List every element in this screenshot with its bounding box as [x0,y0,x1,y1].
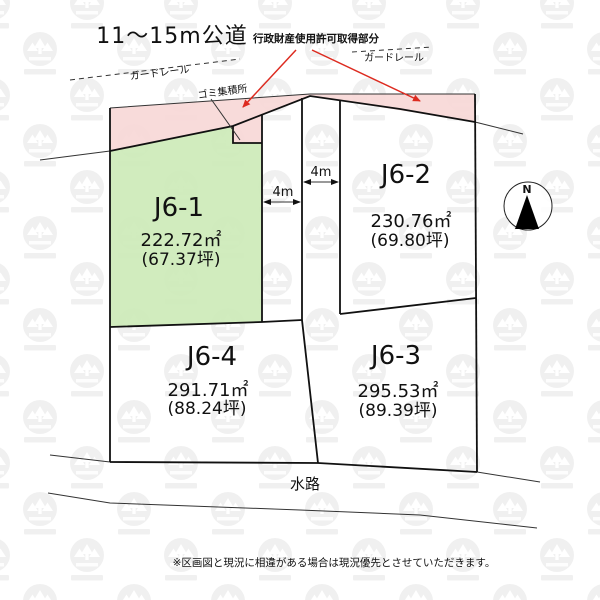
lot-plan-figure: N 11〜15m公道 行政財産使用許可取得部分 ガードレール ガードレール ゴミ… [0,0,600,600]
plot-id: J6-2 [379,160,431,190]
plot-label-j6-3: J6-3 295.53㎡ (89.39坪) [358,341,439,421]
plot-area-tsubo: (67.37坪) [142,250,221,270]
guardrail-label-right: ガードレール [364,52,424,64]
waterway-label: 水路 [290,475,320,493]
j6-2-south-edge [340,298,476,314]
plot-id: J6-3 [369,341,421,371]
plot-area-tsubo: (69.80坪) [371,231,450,251]
east-boundary [475,94,477,472]
waterway-top-extension-left [50,455,110,462]
dimension-label-right: 4m [311,165,332,180]
plot-j6-1-area [110,126,262,327]
plot-label-j6-2: J6-2 230.76㎡ (69.80坪) [371,160,452,251]
plot-area-tsubo: (88.24坪) [168,399,247,419]
boundary-extension-right [475,122,523,134]
north-compass: N [504,182,552,230]
compass-north-label: N [522,183,531,196]
waterway-top-extension-right [477,472,540,482]
footer-note: ※区画図と現況に相違がある場合は現況優先とさせていただきます。 [173,556,496,569]
plot-area-sqm: 222.72㎡ [141,229,222,251]
south-boundary [110,462,477,472]
waterway-bottom-line [48,493,537,528]
road-title: 11〜15m公道 [96,24,247,49]
plot-area-sqm: 295.53㎡ [358,380,439,402]
plot-area-tsubo: (89.39坪) [359,401,438,421]
guardrail-label-left: ガードレール [129,63,190,82]
road-permission-note: 行政財産使用許可取得部分 [252,32,379,45]
plot-id: J6-4 [185,342,237,372]
j6-3-j6-4-divider [302,320,318,463]
plot-label-j6-4: J6-4 291.71㎡ (88.24坪) [168,342,249,419]
lot-plan-drawing: N 11〜15m公道 行政財産使用許可取得部分 ガードレール ガードレール ゴミ… [0,0,600,600]
plot-area-sqm: 230.76㎡ [371,210,452,232]
plot-id: J6-1 [152,193,204,223]
guardrail-line-right [352,47,432,52]
boundary-extension-left [40,151,110,160]
dimension-label-left: 4m [273,185,294,200]
plot-area-sqm: 291.71㎡ [168,379,249,401]
